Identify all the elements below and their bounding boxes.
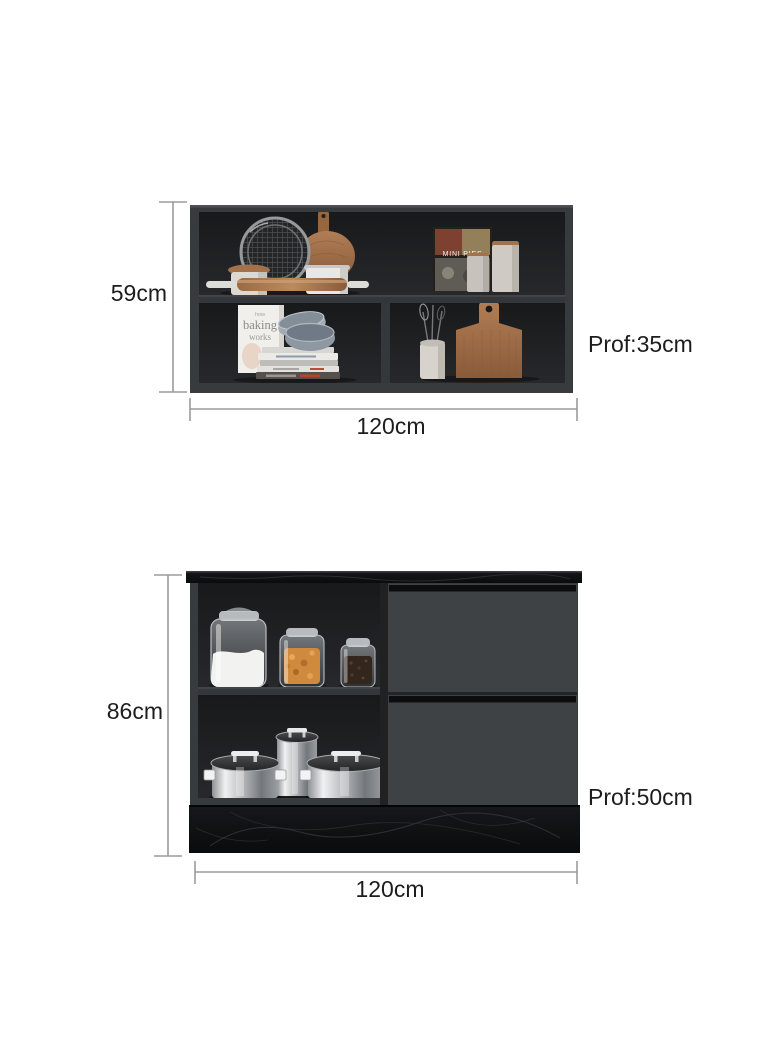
marble-countertop [186,571,582,583]
shelf-edge-highlight [199,295,565,297]
canister-small [467,253,489,292]
drawer-top [388,584,577,692]
base-width-label: 120cm [355,876,424,902]
wall-height-label: 59cm [111,280,167,306]
drawer-bottom-handle-groove [389,696,576,703]
snack-jar [280,628,324,687]
product-dimension-sheet: MINI PIES how baking [0,0,780,1040]
base-depth-label: Prof:50cm [588,784,693,810]
wall-depth-label: Prof:35cm [588,331,693,357]
drawer-gap [388,692,577,695]
coffee-jar [341,638,375,687]
utensil-holder [419,303,446,379]
dimension-diagram-canvas: MINI PIES how baking [0,0,780,1040]
pot-left [204,751,286,801]
base-shelf-highlight [198,687,380,689]
wall-width-label: 120cm [356,413,425,439]
frame-top-highlight [190,205,573,208]
pot-right [300,751,392,801]
base-cabinet-illustration [186,571,582,853]
vertical-divider [381,303,390,383]
canister-large [492,241,519,292]
recipe-book-line3: works [249,332,271,342]
flour-jar [211,608,266,688]
drawer-top-handle-groove [389,585,576,592]
drawer-side-gap [380,583,388,805]
recipe-book-line2: baking [243,318,278,332]
base-height-label: 86cm [107,698,163,724]
marble-plinth [189,805,580,853]
drawer-bottom [388,695,577,805]
book-stack [256,347,340,379]
wall-cabinet-illustration: MINI PIES how baking [190,205,573,393]
